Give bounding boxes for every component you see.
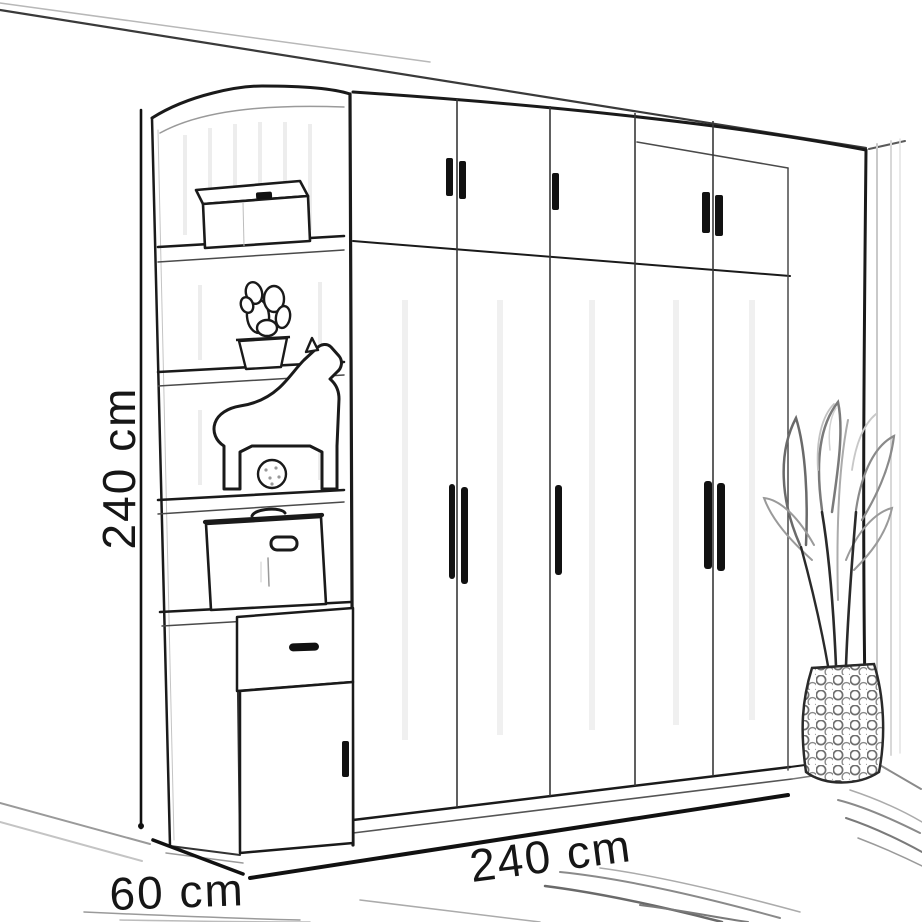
handle-icon: [552, 173, 559, 210]
horse-ear: [306, 338, 318, 352]
handle-icon: [702, 192, 710, 233]
upper-cabinet-divider: [353, 241, 790, 276]
handle-icon: [461, 487, 468, 584]
cabinet-door-front: [240, 682, 353, 853]
box-latch: [256, 191, 272, 199]
base-cabinet-door: [240, 682, 353, 853]
case-hole: [271, 537, 297, 550]
left-edge: [152, 118, 170, 846]
corner-shelf-unit: [152, 86, 353, 863]
handle-icon: [555, 485, 562, 575]
case-body: [206, 517, 326, 610]
handle-icon: [449, 484, 455, 579]
wardrobe-top-edge: [353, 92, 866, 150]
handle-icon: [715, 195, 723, 236]
depth-dimension-label: 60 cm: [109, 863, 246, 920]
case-handle: [252, 509, 285, 516]
arched-top: [152, 86, 350, 118]
potted-cactus: [236, 280, 292, 369]
wardrobe-frame: [353, 92, 866, 833]
storage-box: [196, 181, 310, 248]
potted-plant: [764, 402, 894, 783]
storage-case: [205, 509, 326, 610]
dimension-annotations: 240 cm 240 cm 60 cm: [93, 110, 788, 920]
handle-icon: [704, 481, 712, 569]
handle-icon: [459, 161, 466, 199]
cabinet-door-handle: [342, 741, 349, 777]
furniture-dimension-sketch: 240 cm 240 cm 60 cm: [0, 0, 922, 922]
drawer-handle: [289, 642, 319, 651]
upper-door-handles: [446, 158, 723, 236]
ceiling-line: [0, 10, 866, 148]
wardrobe-bottom-edge: [353, 767, 790, 820]
width-dimension-label: 240 cm: [467, 819, 635, 892]
box-front: [203, 196, 310, 248]
wardrobe: [353, 92, 866, 833]
height-dimension-label: 240 cm: [93, 387, 145, 550]
sketch-svg: 240 cm 240 cm 60 cm: [0, 0, 922, 922]
drawer: [237, 608, 353, 691]
handle-icon: [446, 158, 453, 196]
handle-icon: [717, 483, 725, 571]
cactus-pot: [239, 338, 287, 369]
main-door-handles: [449, 481, 725, 584]
